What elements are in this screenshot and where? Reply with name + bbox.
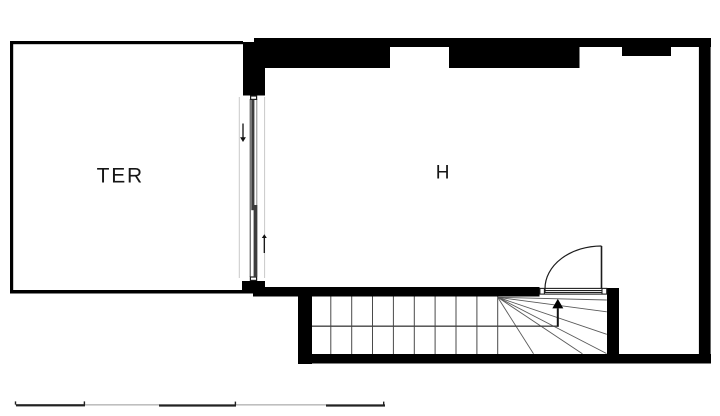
svg-text:H: H	[436, 162, 450, 183]
svg-text:TER: TER	[97, 165, 144, 188]
